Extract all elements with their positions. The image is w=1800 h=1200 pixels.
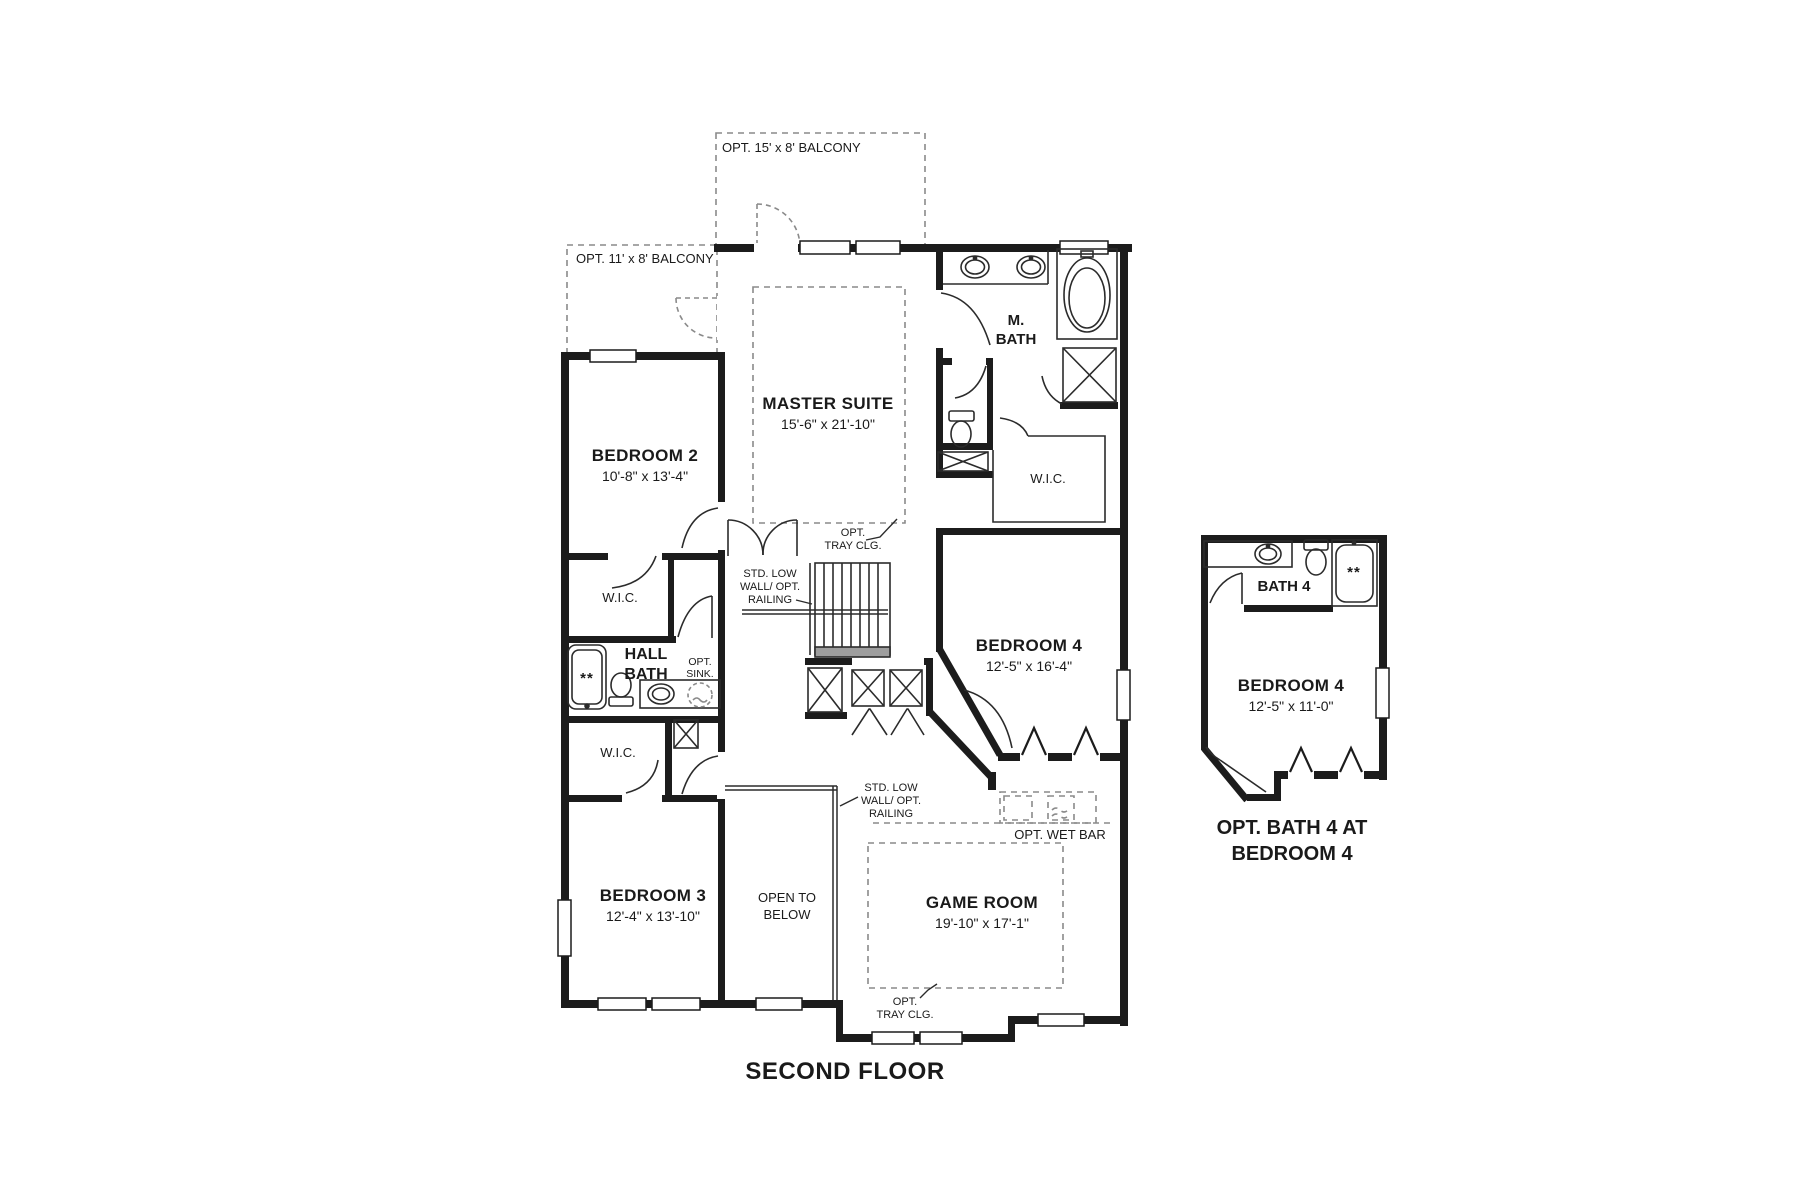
- annotation-arrows: [796, 519, 937, 998]
- bath4-stars: **: [1347, 564, 1361, 581]
- opt-sink-label: OPT. SINK.: [686, 656, 713, 680]
- room-label-bath4: BATH 4: [1257, 578, 1310, 597]
- chevron-marker: [1290, 748, 1312, 772]
- std-low-wall-label-gameroom: STD. LOW WALL/ OPT. RAILING: [861, 782, 921, 822]
- room-label-bedroom3: BEDROOM 3 12'-4" x 13'-10": [600, 886, 707, 924]
- room-label-bedroom2: BEDROOM 2 10'-8" x 13'-4": [592, 446, 699, 484]
- plan-title: SECOND FLOOR: [745, 1058, 944, 1086]
- double-door-fold: [891, 709, 924, 735]
- room-label-master-bath: M. BATH: [996, 312, 1037, 350]
- balcony-left-label: OPT. 11' x 8' BALCONY: [576, 252, 714, 267]
- opt-wet-bar-label: OPT. WET BAR: [1014, 827, 1106, 844]
- hall-linen-closet: [674, 720, 698, 748]
- open-to-below-label: OPEN TO BELOW: [758, 890, 816, 924]
- room-label-wic-bedroom3: W.I.C.: [600, 745, 635, 762]
- room-label-hall-bath: HALL BATH: [624, 645, 667, 685]
- optional-sink-outline: [688, 683, 712, 707]
- room-label-bedroom4-optional: BEDROOM 4 12'-5" x 11'-0": [1238, 676, 1345, 714]
- master-tub: [1057, 249, 1117, 339]
- toilet: [609, 697, 633, 706]
- wetbar-cabinet2-outline: [1004, 796, 1032, 820]
- floorplan-canvas: OPT. 15' x 8' BALCONY OPT. 11' x 8' BALC…: [0, 0, 1800, 1200]
- wetbar-sink-squiggle: [1052, 808, 1068, 818]
- utility-closets: [808, 668, 924, 735]
- wetbar-sink-outline: [1048, 796, 1074, 820]
- balcony-top-door-arc: [757, 204, 800, 247]
- room-label-master-wic: W.I.C.: [1030, 471, 1065, 488]
- room-label-master-suite: MASTER SUITE 15'-6" x 21'-10": [762, 394, 893, 432]
- room-label-game-room: GAME ROOM 19'-10" x 17'-1": [926, 893, 1038, 931]
- chevron-marker: [1074, 728, 1098, 755]
- chevron-marker: [1022, 728, 1046, 755]
- room-label-bedroom4: BEDROOM 4 12'-5" x 16'-4": [976, 636, 1083, 674]
- toilet: [949, 411, 974, 421]
- gameroom-tray-label: OPT. TRAY CLG.: [876, 996, 933, 1022]
- room-label-wic-bedroom2: W.I.C.: [602, 590, 637, 607]
- optional-unit-caption: OPT. BATH 4 AT BEDROOM 4: [1217, 815, 1368, 867]
- vanity: [1204, 541, 1292, 567]
- balcony-top-label: OPT. 15' x 8' BALCONY: [722, 141, 861, 156]
- std-low-wall-label-stairs: STD. LOW WALL/ OPT. RAILING: [740, 568, 800, 608]
- double-door-fold: [852, 709, 887, 735]
- balcony-doors: [676, 204, 800, 338]
- balcony-left-door-arc: [676, 298, 716, 338]
- master-tray-label: OPT. TRAY CLG.: [824, 527, 881, 553]
- chevron-marker: [1340, 748, 1362, 772]
- hall-bath-stars: **: [580, 670, 594, 687]
